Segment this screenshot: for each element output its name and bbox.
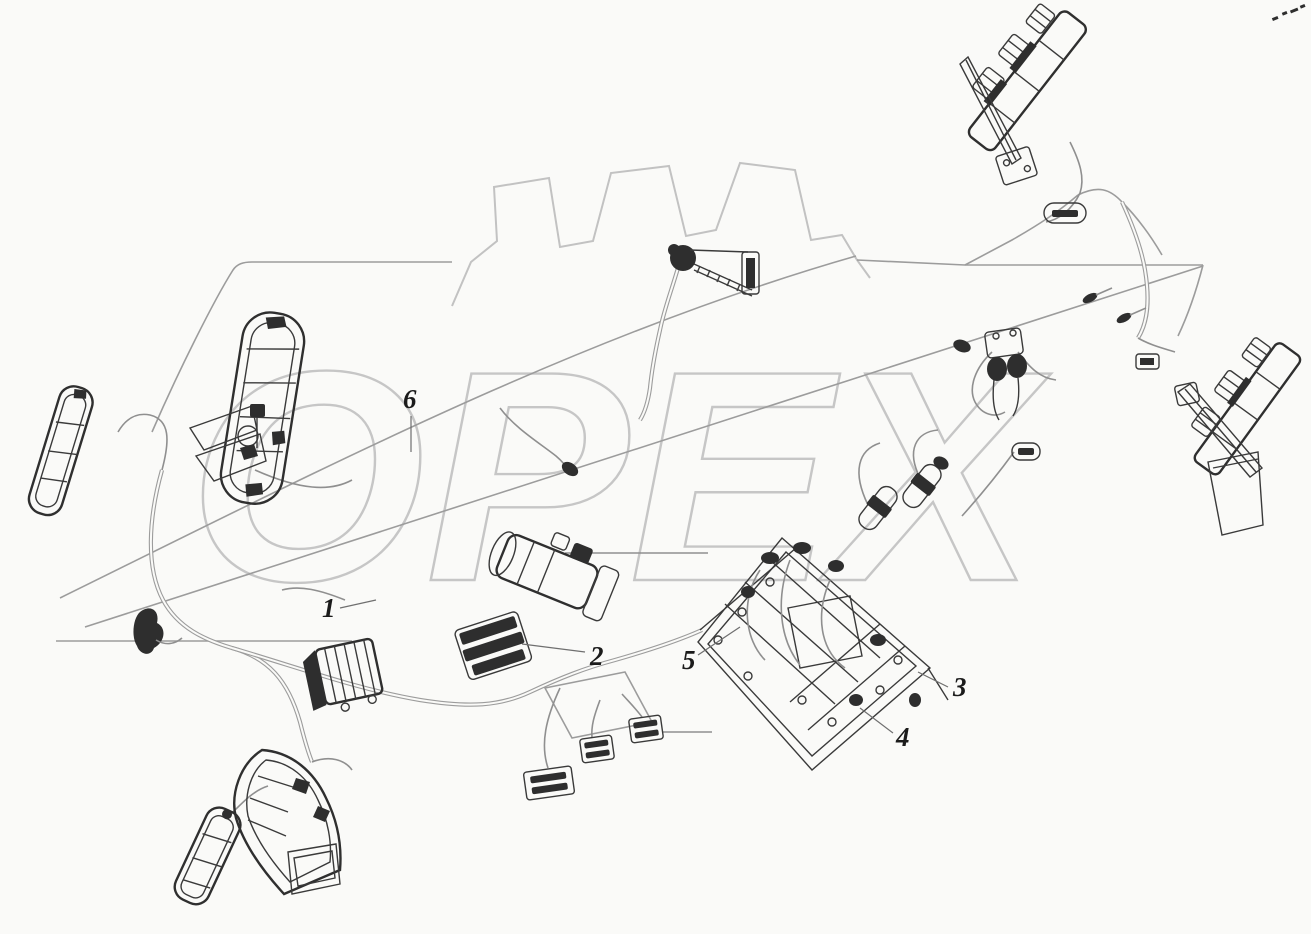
callout-3: 3 <box>952 672 967 702</box>
diagram-canvas: OPEX <box>0 0 1311 934</box>
watermark-text: OPEX <box>188 308 1052 644</box>
sensor-with-rod <box>668 244 759 296</box>
gear-outline-icon <box>452 163 870 306</box>
callout-5: 5 <box>682 645 696 675</box>
alternator <box>301 638 385 718</box>
fuse-relay-strip-top <box>947 0 1088 153</box>
watermark: OPEX <box>188 163 1052 644</box>
callout-6: 6 <box>403 384 417 414</box>
corner-marks-icon <box>1272 4 1306 21</box>
rear-combination-lamp <box>234 750 340 894</box>
callout-2: 2 <box>589 641 604 671</box>
callout-1: 1 <box>322 593 336 623</box>
callout-4: 4 <box>895 722 910 752</box>
rear-position-lamp <box>170 802 245 909</box>
bottom-connectors <box>523 715 663 800</box>
wiring-diagram-svg: OPEX <box>0 0 1311 934</box>
fuse-relay-strip-right <box>1174 327 1303 476</box>
bracket-top-right <box>960 57 1038 186</box>
bracket-right <box>1174 382 1263 535</box>
front-position-lamp <box>25 383 96 519</box>
